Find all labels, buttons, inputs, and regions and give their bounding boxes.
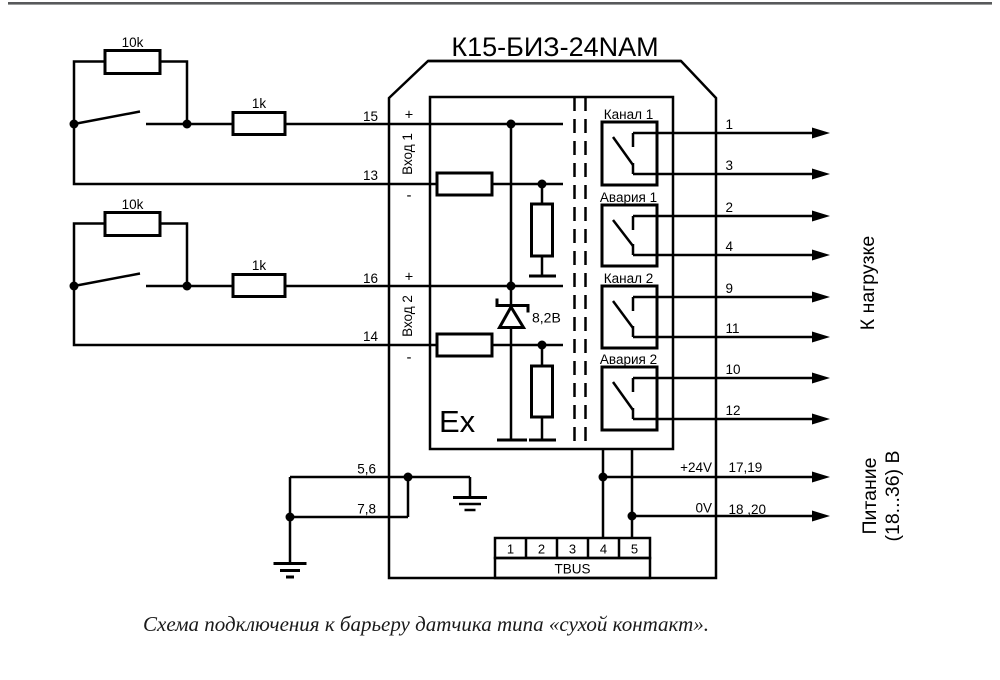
bypass-resistor-2	[105, 213, 160, 236]
input1-plus: +	[405, 108, 413, 124]
tbus-cell-3: 3	[569, 542, 576, 557]
output-pin: 3	[726, 158, 734, 173]
tbus-connector: 1 2 3 4 5 TBUS	[495, 538, 650, 578]
plus24v-label: +24V	[680, 460, 712, 475]
isolation-barrier-dashed-lines	[575, 97, 586, 449]
sensor-circuit-2: 10k 1k	[70, 197, 564, 345]
figure-caption: Схема подключения к барьеру датчика типа…	[143, 612, 709, 636]
zener-diode	[497, 299, 528, 328]
internal-ground-symbol	[453, 498, 487, 511]
zerov-label: 0V	[695, 501, 712, 516]
output-pin: 10	[726, 362, 741, 377]
ex-zone-label: Ex	[439, 404, 476, 439]
schematic-canvas: К15-БИЗ-24NAM 10k 1k 10k 1k	[0, 0, 1000, 680]
ground-pins-bottom: 7,8	[357, 502, 376, 517]
power-rails: +24V 17,19 0V 18 ,20	[599, 449, 831, 538]
wiring-diagram: К15-БИЗ-24NAM 10k 1k 10k 1k	[0, 0, 1000, 680]
shunt-resistor-1	[532, 204, 553, 256]
pin-16: 16	[363, 271, 378, 286]
tbus-cell-2: 2	[538, 542, 545, 557]
input1-minus: -	[407, 187, 412, 204]
relay-box	[602, 205, 657, 266]
output-pin: 9	[726, 281, 734, 296]
ground-connections: 5,6 7,8	[274, 462, 488, 578]
supply-label-line1: Питание	[859, 458, 881, 535]
series-resistor-1-label: 1k	[252, 96, 267, 111]
output-pin: 12	[726, 403, 741, 418]
pin-15: 15	[363, 109, 378, 124]
series-resistor-2	[233, 275, 285, 297]
bypass-resistor-1	[105, 51, 160, 74]
page-top-rule	[8, 2, 992, 5]
load-label: К нагрузке	[857, 236, 879, 330]
relay-box	[602, 367, 657, 430]
output-pin: 1	[726, 117, 734, 132]
relay-box	[602, 286, 657, 348]
series-resistor-1	[233, 113, 285, 135]
tbus-label: TBUS	[554, 562, 590, 577]
shunt-resistor-2	[532, 366, 553, 417]
ground-pins-top: 5,6	[357, 462, 376, 477]
series-resistor-2-label: 1k	[252, 258, 267, 273]
relay-box	[602, 122, 657, 185]
input2-limit-resistor	[437, 334, 492, 356]
input-pin-numbers: 15 13 16 14	[363, 109, 379, 344]
input2-minus: -	[407, 349, 412, 366]
relay-label: Канал 2	[604, 271, 653, 286]
output-pin: 11	[726, 321, 740, 336]
relay-label: Авария 2	[600, 352, 657, 367]
supply-label-line2: (18...36) В	[882, 450, 904, 541]
zener-voltage-label: 8,2В	[532, 310, 561, 326]
output-pin: 2	[726, 200, 734, 215]
tbus-cell-5: 5	[631, 542, 638, 557]
plus24v-pins: 17,19	[729, 460, 763, 475]
tbus-cell-1: 1	[507, 542, 514, 557]
output-pin: 4	[726, 239, 734, 254]
pin-14: 14	[363, 329, 379, 344]
external-ground-symbol	[274, 564, 307, 578]
bypass-resistor-2-label: 10k	[122, 197, 144, 212]
bypass-resistor-1-label: 10k	[122, 35, 144, 50]
relay-label: Авария 1	[600, 190, 657, 205]
tbus-cell-4: 4	[600, 542, 607, 557]
relay-label: Канал 1	[604, 107, 653, 122]
pin-13: 13	[363, 168, 378, 183]
zerov-pins: 18 ,20	[729, 502, 767, 517]
input-labels: + Вход 1 - + Вход 2 -	[400, 108, 415, 367]
device-title: К15-БИЗ-24NAM	[451, 32, 658, 62]
input1-limit-resistor	[437, 173, 492, 195]
input1-label: Вход 1	[400, 133, 415, 175]
ex-zone-wiring: 8,2В Ex	[437, 120, 561, 441]
input2-label: Вход 2	[400, 295, 415, 337]
input2-plus: +	[405, 270, 413, 286]
